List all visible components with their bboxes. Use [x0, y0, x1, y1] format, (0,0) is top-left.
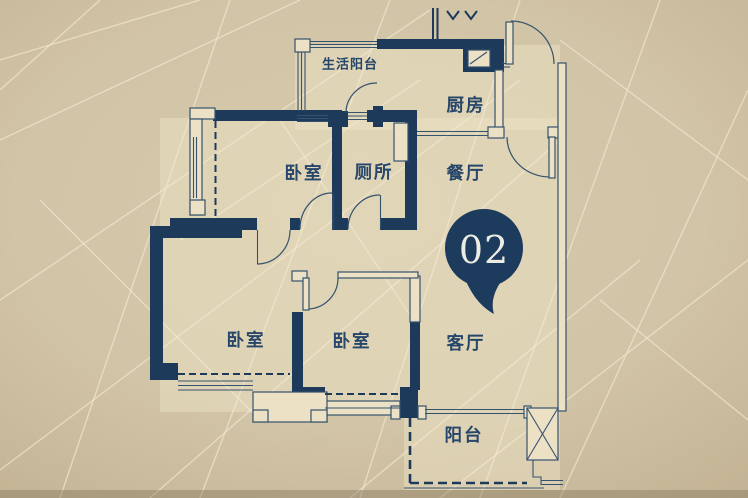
- label-balcony: 阳台: [445, 425, 484, 446]
- label-living-room: 客厅: [446, 333, 486, 354]
- floorplan-svg: 生活阳台 厨房 卧室 厕所 餐厅 卧室 卧室 客厅 阳台 02: [0, 0, 748, 498]
- label-service-balcony: 生活阳台: [322, 57, 378, 73]
- label-bedroom-middle: 卧室: [333, 331, 372, 352]
- vent-symbols: [433, 8, 477, 39]
- unit-marker-number: 02: [459, 228, 509, 272]
- kitchen-flue: [463, 45, 495, 72]
- floorplan-image: 生活阳台 厨房 卧室 厕所 餐厅 卧室 卧室 客厅 阳台 02: [0, 0, 748, 498]
- bay-window: [253, 392, 327, 422]
- label-kitchen: 厨房: [447, 95, 486, 116]
- label-toilet: 厕所: [355, 162, 394, 183]
- label-bedroom-left: 卧室: [227, 330, 266, 351]
- bottom-edge-band: [0, 490, 748, 498]
- label-bedroom-top: 卧室: [285, 163, 324, 184]
- label-dining: 餐厅: [447, 163, 486, 184]
